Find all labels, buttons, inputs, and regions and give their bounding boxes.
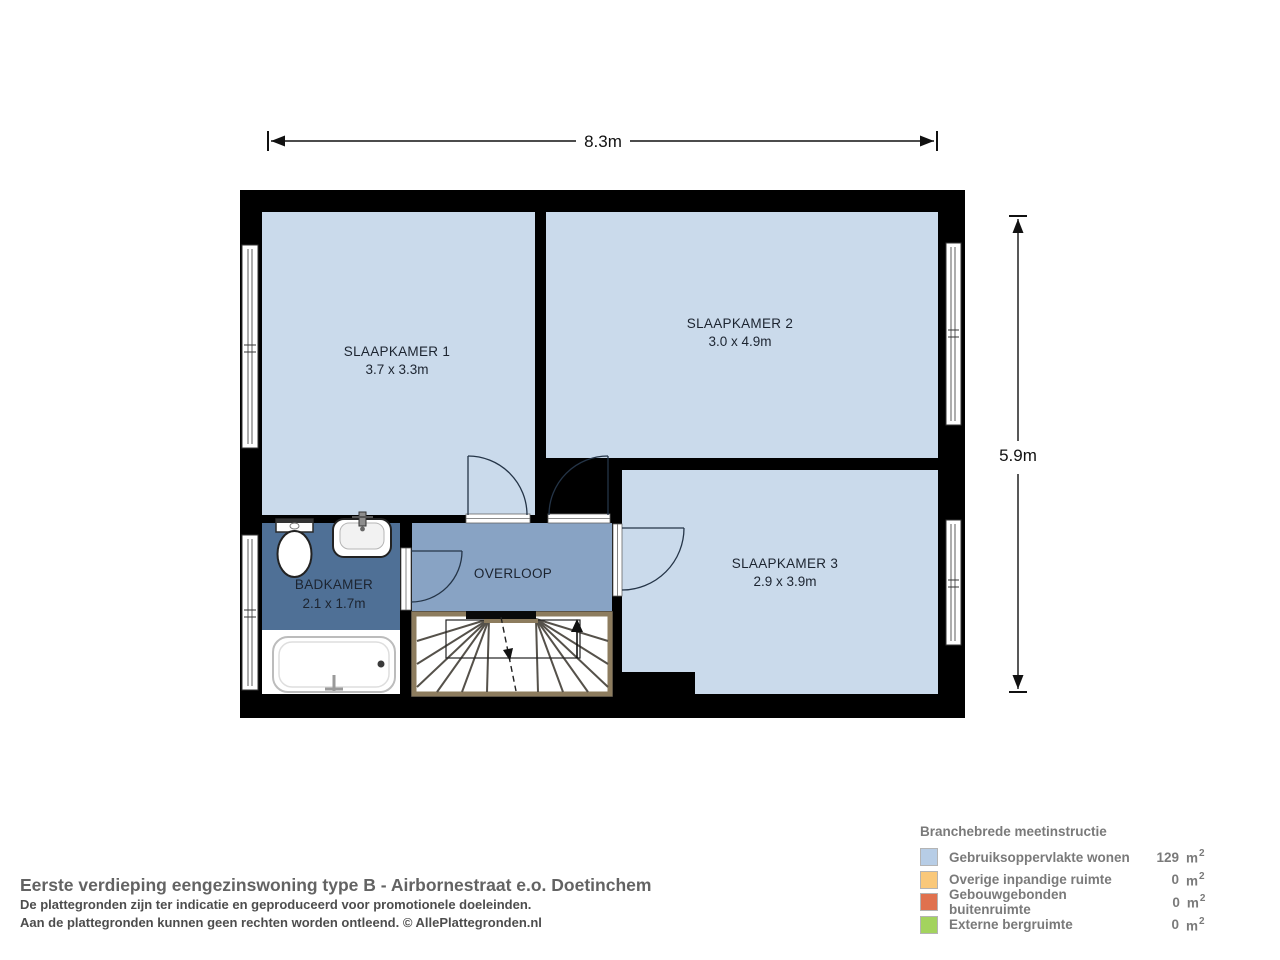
room-label-slaapkamer-2: SLAAPKAMER 2 [687,316,793,331]
floorplan-page: SLAAPKAMER 1 3.7 x 3.3m SLAAPKAMER 2 3.0… [0,0,1280,960]
window-slaapkamer1-left [242,245,258,448]
legend-swatch-green [920,916,938,934]
legend-unit: m2 [1186,917,1212,934]
dim-arrow-up-icon [1013,219,1024,233]
dim-arrow-right-icon [920,136,934,147]
room-size-slaapkamer-3: 2.9 x 3.9m [753,574,816,589]
legend-swatch-blue [920,848,938,866]
room-label-slaapkamer-1: SLAAPKAMER 1 [344,344,450,359]
legend-unit: m2 [1187,894,1212,911]
dim-height-label: 5.9m [999,446,1037,465]
stair-nosing [484,619,538,623]
doorjamb-slaapkamer3 [613,524,622,596]
legend-label: Overige inpandige ruimte [949,872,1143,887]
window-badkamer-left [242,535,258,690]
legend-value: 0 [1143,917,1179,932]
page-title: Eerste verdieping eengezinswoning type B… [20,874,651,896]
legend-swatch-red [920,893,938,911]
legend-unit: m2 [1186,872,1212,889]
staircase [412,611,613,697]
doorjamb-badkamer [401,548,411,610]
sink-fixture [333,512,391,557]
wall-s1-s2 [535,190,546,515]
room-size-slaapkamer-2: 3.0 x 4.9m [708,334,771,349]
dim-arrow-down-icon [1013,675,1024,689]
room-label-badkamer: BADKAMER [295,577,373,592]
legend-title: Branchebrede meetinstructie [920,824,1212,839]
dim-arrow-left-icon [271,136,285,147]
legend-value: 0 [1145,895,1180,910]
footer: Eerste verdieping eengezinswoning type B… [20,874,651,931]
doorjamb-slaapkamer2 [548,514,610,523]
window-slaapkamer2-right [946,243,961,425]
floorplan-drawing: SLAAPKAMER 1 3.7 x 3.3m SLAAPKAMER 2 3.0… [0,0,1280,960]
wall-s3-notch [615,672,695,696]
legend-unit: m2 [1186,849,1212,866]
footer-disclaimer-1: De plattegronden zijn ter indicatie en g… [20,896,651,914]
room-size-badkamer: 2.1 x 1.7m [302,596,365,611]
legend-label: Externe bergruimte [949,917,1143,932]
room-label-slaapkamer-3: SLAAPKAMER 3 [732,556,838,571]
legend-row-wonen: Gebruiksoppervlakte wonen 129 m2 [920,846,1212,869]
legend-label: Gebouwgebonden buitenruimte [949,887,1145,917]
dimension-height: 5.9m [999,216,1037,692]
room-label-overloop: OVERLOOP [474,566,552,581]
toilet-fixture [276,519,313,577]
legend-value: 129 [1143,850,1179,865]
window-slaapkamer3-right [946,520,961,645]
wall-s2-s3 [612,458,965,470]
room-size-slaapkamer-1: 3.7 x 3.3m [365,362,428,377]
legend-label: Gebruiksoppervlakte wonen [949,850,1143,865]
footer-disclaimer-2: Aan de plattegronden kunnen geen rechten… [20,914,651,932]
dimension-width: 8.3m [268,131,937,151]
legend-value: 0 [1143,872,1179,887]
legend-swatch-orange [920,871,938,889]
bathtub-fixture [273,637,395,692]
doorjamb-slaapkamer1 [466,514,530,523]
legend-row-buitenruimte: Gebouwgebonden buitenruimte 0 m2 [920,891,1212,914]
legend: Branchebrede meetinstructie Gebruiksoppe… [920,824,1212,936]
legend-row-bergruimte: Externe bergruimte 0 m2 [920,914,1212,937]
dim-width-label: 8.3m [584,132,622,151]
